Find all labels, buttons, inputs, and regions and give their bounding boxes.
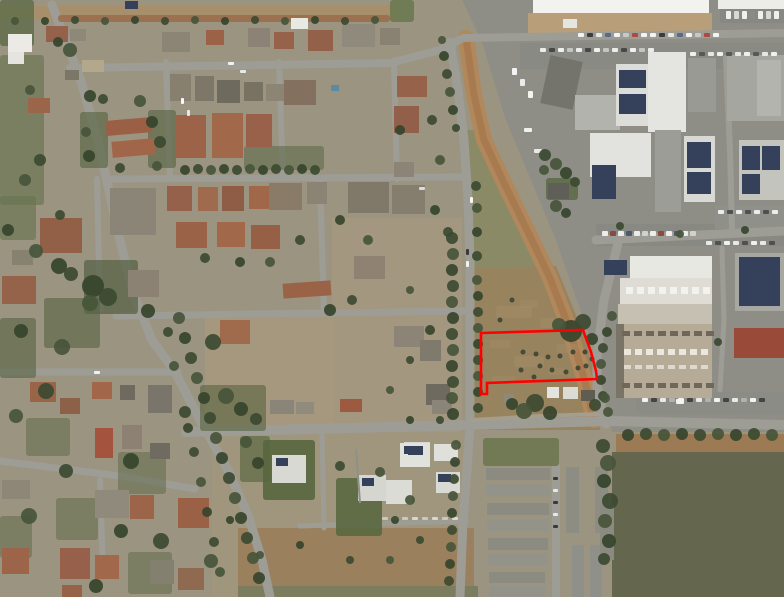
satellite-map-screenshot <box>0 0 784 597</box>
aerial-imagery <box>0 0 784 597</box>
factory-building <box>616 256 714 398</box>
